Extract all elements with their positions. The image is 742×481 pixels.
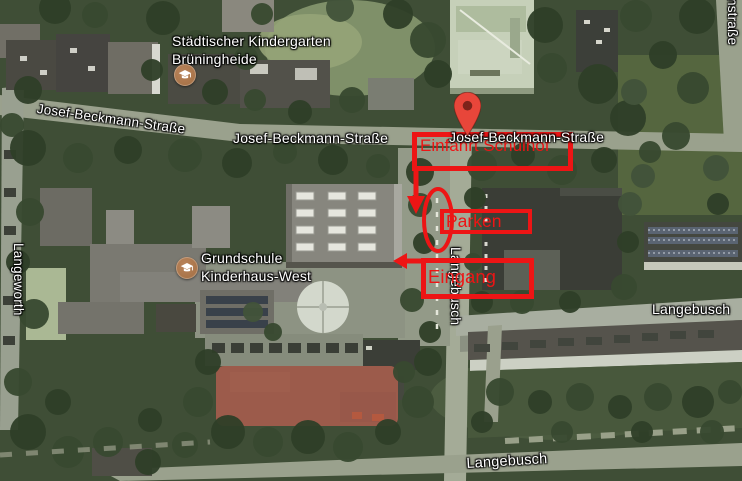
location-pin-icon[interactable] <box>454 92 481 136</box>
graduation-cap-glyph <box>180 262 194 275</box>
street-label-josef-beckmann-center: Josef-Beckmann-Straße <box>233 130 388 146</box>
street-label-langebusch-right: Langebusch <box>652 301 730 317</box>
poi-grundschule-line1: Grundschule <box>201 249 311 267</box>
poi-label-kindergarten[interactable]: Städtischer Kindergarten Brüningheide <box>172 32 331 68</box>
graduation-cap-icon[interactable] <box>174 64 196 86</box>
street-label-langeworth: Langeworth <box>11 243 26 316</box>
graduation-cap-icon[interactable] <box>176 257 198 279</box>
poi-label-grundschule[interactable]: Grundschule Kinderhaus-West <box>201 249 311 285</box>
annotation-label-eingang: Eingang <box>428 266 496 288</box>
map-container[interactable]: Josef-Beckmann-Straße Josef-Beckmann-Str… <box>0 0 742 481</box>
poi-grundschule-line2: Kinderhaus-West <box>201 267 311 285</box>
poi-kindergarten-line1: Städtischer Kindergarten <box>172 32 331 50</box>
street-label-nstrasse-partial: nstraße <box>725 0 740 45</box>
graduation-cap-glyph <box>178 69 192 82</box>
annotation-label-parken: Parken <box>446 211 501 232</box>
satellite-imagery <box>0 0 742 481</box>
poi-kindergarten-line2: Brüningheide <box>172 50 331 68</box>
